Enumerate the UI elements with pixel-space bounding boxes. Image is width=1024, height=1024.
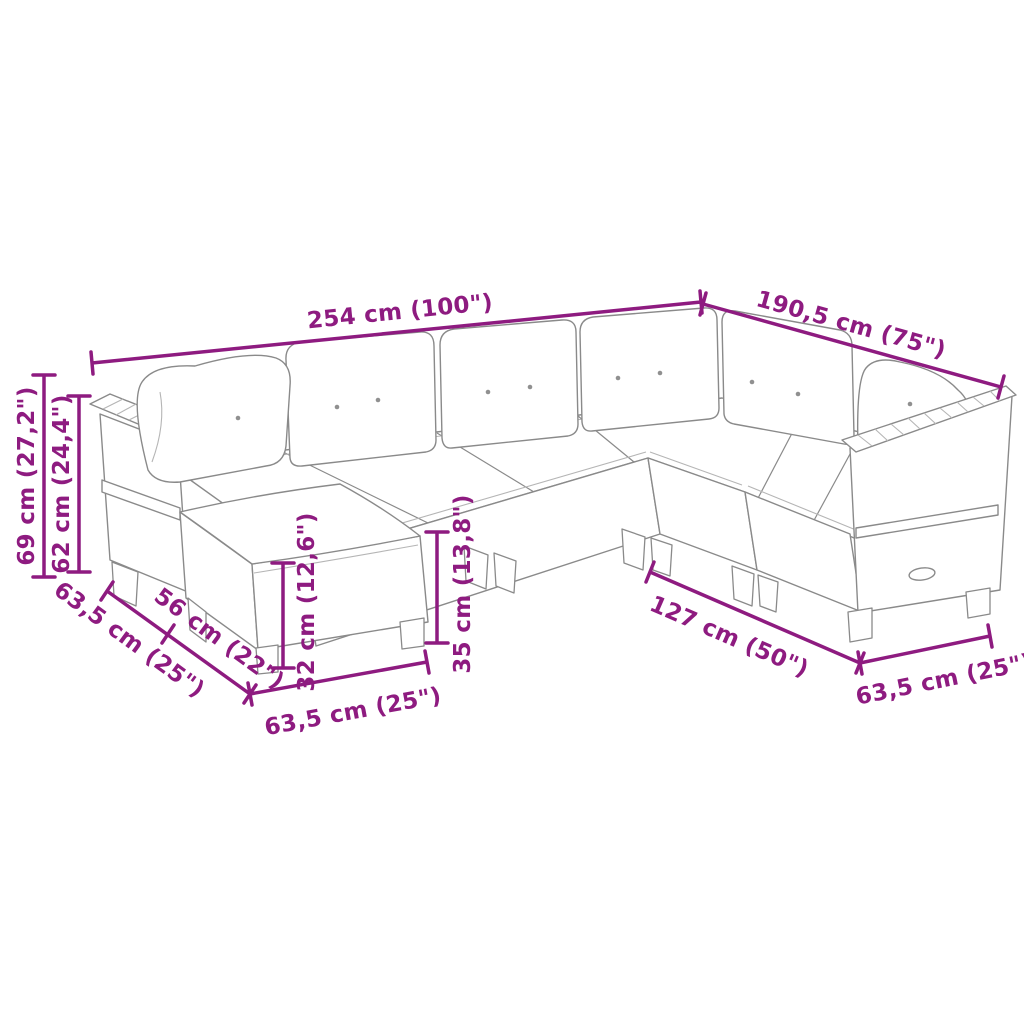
diagram-canvas: 254 cm (100") 190,5 cm (75") 69 cm (27,2… [0,0,1024,1024]
sofa-drawing [90,308,1016,674]
dimension-label-seat-height: 35 cm (13,8") [450,494,476,673]
dimension-label-overall-height: 69 cm (27,2") [14,386,40,565]
dimension-label-footstool-height: 32 cm (12,6") [294,512,320,691]
dimension-label-armrest-height: 62 cm (24,4") [49,394,75,573]
sofa-dimension-diagram: 254 cm (100") 190,5 cm (75") 69 cm (27,2… [0,0,1024,1024]
corner-back-cushion [137,355,290,482]
dimension-label-footstool-width: 63,5 cm (25") [262,683,443,741]
